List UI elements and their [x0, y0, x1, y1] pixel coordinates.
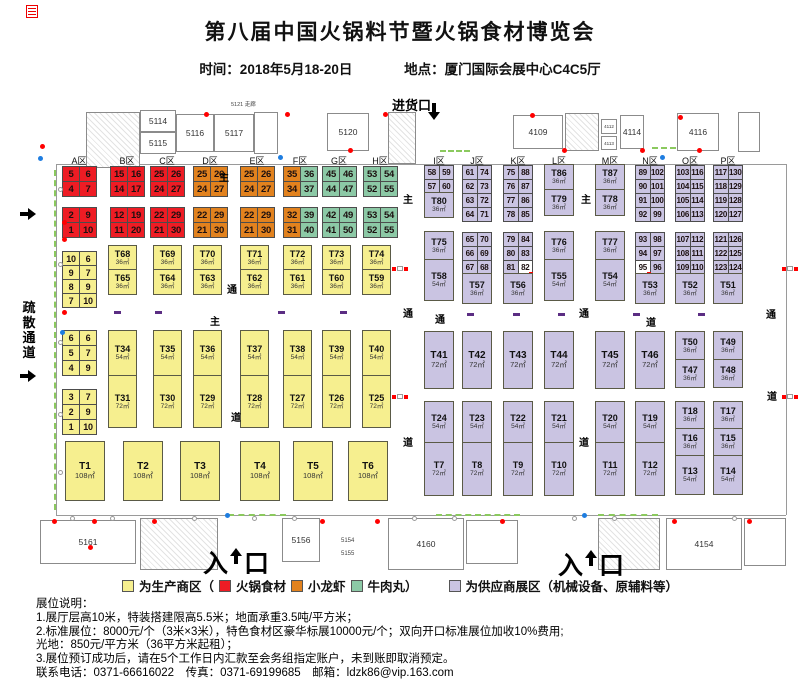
booth-area: 36㎡: [330, 259, 344, 267]
booth-area: 36㎡: [201, 259, 215, 267]
booth-t21: T2154㎡: [544, 401, 574, 443]
booth-t74: T7436㎡: [362, 245, 391, 270]
booth-cell-31: 31: [284, 223, 300, 237]
booth-t72: T7236㎡: [283, 245, 312, 270]
booth-cell-80: 80: [504, 247, 518, 260]
booth-cell-97: 97: [651, 247, 665, 260]
booth-number: T26: [329, 393, 345, 403]
aisle-label: 通: [435, 311, 445, 326]
arrow-right-icon: [20, 370, 36, 382]
fire-point-icon: [530, 113, 535, 118]
booth-area: 36㎡: [291, 259, 305, 267]
booth-area: 36㎡: [721, 416, 735, 424]
evacuation-line: [54, 170, 56, 510]
entrance-label: 入口: [203, 544, 269, 580]
aisle-dash: [278, 311, 285, 314]
booth-number: T73: [329, 249, 345, 259]
booth-cell-22: 22: [151, 208, 167, 222]
booth-t60: T6036㎡: [322, 269, 351, 295]
aisle-label: 主: [219, 169, 229, 184]
booth-t19: T1954㎡: [635, 401, 665, 443]
booth-cell-103: 103: [676, 166, 690, 179]
booth-area: 36㎡: [201, 283, 215, 291]
booth-cell-77: 77: [504, 194, 518, 207]
booth-cell-9: 9: [63, 266, 79, 279]
booth-cell-92: 92: [636, 208, 650, 221]
hydrant-icon: [782, 394, 798, 399]
booth-number: T70: [200, 249, 216, 259]
evacuation-line: [440, 150, 470, 152]
booth-t64: T6436㎡: [153, 269, 182, 295]
booth-number: T9: [513, 460, 524, 470]
booth-t69: T6936㎡: [153, 245, 182, 270]
booth-number: T69: [160, 249, 176, 259]
booth-cell-83: 83: [519, 247, 533, 260]
booth-cell-87: 87: [519, 180, 533, 193]
booth-cell-22: 22: [194, 208, 210, 222]
booth-cell-45: 45: [323, 167, 339, 181]
booth-cell-30: 30: [211, 223, 227, 237]
booth-area: 36㎡: [330, 283, 344, 291]
fire-point-icon: [383, 112, 388, 117]
booth-area: 54㎡: [116, 354, 130, 362]
room-4154: 4154: [666, 518, 742, 570]
booth-cell-115: 115: [691, 180, 705, 193]
booth-number: T55: [551, 271, 567, 281]
arrow-right-icon: [20, 208, 36, 220]
booth-cell-114: 114: [691, 194, 705, 207]
booth-number: T74: [369, 249, 385, 259]
booth-area: 72㎡: [330, 403, 344, 411]
booth-t77: T7736㎡: [595, 231, 625, 260]
booth-cell-19: 19: [128, 208, 144, 222]
booth-t68: T6836㎡: [108, 245, 137, 270]
booth-grid: 8910290101911009299: [635, 165, 665, 222]
room-unlabeled: [388, 112, 416, 164]
booth-number: T17: [720, 406, 736, 416]
booth-number: T37: [247, 344, 263, 354]
door-icon: [192, 516, 197, 521]
booth-cell-63: 63: [463, 194, 477, 207]
booth-cell-10: 10: [80, 223, 96, 237]
booth-area: 108㎡: [75, 472, 95, 480]
fire-point-icon: [52, 519, 57, 524]
booth-number: T59: [369, 273, 385, 283]
booth-t76: T7636㎡: [544, 231, 574, 260]
booth-t31: T3172㎡: [108, 375, 137, 428]
legend-swatch-icon: [449, 580, 461, 592]
booth-number: T7: [434, 460, 445, 470]
booth-t9: T972㎡: [503, 442, 533, 496]
booth-t54: T5454㎡: [595, 259, 625, 301]
booth-t58: T5854㎡: [424, 259, 454, 301]
booth-number: T68: [115, 249, 131, 259]
booth-t43: T4372㎡: [503, 331, 533, 389]
floor-plan-page: 第八届中国火锅料节暨火锅食材博览会 时间：2018年5月18-20日 地点：厦门…: [0, 0, 800, 694]
booth-area: 36㎡: [511, 290, 525, 298]
booth-cell-9: 9: [80, 208, 96, 222]
booth-cell-79: 79: [504, 233, 518, 246]
booth-area: 36㎡: [161, 259, 175, 267]
booth-cell-34: 34: [284, 182, 300, 196]
aisle-dash: [698, 313, 705, 316]
utility-point-icon: [278, 155, 283, 160]
legend-swatch-icon: [351, 580, 363, 592]
booth-grid: 25262427: [240, 166, 275, 197]
fire-point-icon: [92, 519, 97, 524]
booth-area: 36㎡: [370, 259, 384, 267]
booth-t59: T5936㎡: [362, 269, 391, 295]
booth-area: 72㎡: [370, 403, 384, 411]
booth-t20: T2054㎡: [595, 401, 625, 443]
booth-cell-128: 128: [729, 194, 743, 207]
booth-t55: T5554㎡: [544, 259, 574, 301]
booth-cell-36: 36: [301, 167, 317, 181]
booth-t51: T5136㎡: [713, 273, 743, 304]
booth-cell-21: 21: [194, 223, 210, 237]
booth-grid: 798480838182: [503, 232, 533, 275]
booth-cell-10: 10: [80, 420, 96, 434]
booth-number: T40: [369, 344, 385, 354]
booth-grid: 3729110: [62, 389, 97, 435]
booth-cell-11: 11: [111, 223, 127, 237]
booth-t78: T7836㎡: [595, 189, 625, 216]
room-4112: 4112: [601, 119, 617, 134]
booth-number: T35: [160, 344, 176, 354]
booth-grid: 22292130: [193, 207, 228, 238]
evacuation-label: 道: [22, 345, 36, 360]
aisle-label: 道: [646, 314, 656, 329]
booth-number: T31: [115, 393, 131, 403]
booth-grid: 939894979596: [635, 232, 665, 275]
booth-cell-88: 88: [519, 166, 533, 179]
booth-area: 72㎡: [470, 470, 484, 478]
booth-area: 108㎡: [250, 472, 270, 480]
booth-grid: 107112108111109110: [675, 232, 705, 275]
note-line: 联系电话：0371-66616022 传真：0371-69199685 邮箱：l…: [36, 667, 781, 681]
booth-cell-74: 74: [478, 166, 492, 179]
booth-number: T80: [431, 196, 447, 206]
booth-cell-94: 94: [636, 247, 650, 260]
booth-area: 36㎡: [721, 347, 735, 355]
booth-cell-17: 17: [128, 182, 144, 196]
booth-area: 54㎡: [201, 354, 215, 362]
booth-area: 36㎡: [370, 283, 384, 291]
booth-cell-25: 25: [194, 167, 210, 181]
booth-number: T23: [469, 413, 485, 423]
booth-cell-69: 69: [478, 247, 492, 260]
booth-cell-6: 6: [80, 331, 96, 345]
room-unlabeled: [744, 518, 786, 566]
room-5161: 5161: [40, 520, 136, 564]
booth-grid: 45464447: [322, 166, 357, 197]
legend-label: 为供应商展区（机械设备、原辅料等）: [466, 576, 679, 595]
booth-area: 36㎡: [683, 375, 697, 383]
note-line: 光地：850元/平方米（36平方米起租）；: [36, 639, 781, 653]
booth-cell-4: 4: [63, 361, 79, 375]
booth-grid: 7588768777867885: [503, 165, 533, 222]
booth-cell-117: 117: [714, 166, 728, 179]
aisle-dash: [513, 313, 520, 316]
door-icon: [70, 516, 75, 521]
booth-area: 54㎡: [721, 476, 735, 484]
booth-area: 36㎡: [683, 443, 697, 451]
booth-t15: T1536㎡: [713, 428, 743, 456]
booth-cell-100: 100: [651, 194, 665, 207]
hydrant-icon: [392, 394, 408, 399]
booth-cell-7: 7: [80, 182, 96, 196]
booth-cell-107: 107: [676, 233, 690, 246]
booth-number: T48: [720, 365, 736, 375]
wall: [56, 164, 57, 515]
evacuation-line: [598, 514, 658, 516]
utility-point-icon: [60, 330, 65, 335]
legend-swatch-icon: [219, 580, 231, 592]
booth-grid: 103116104115105114106113: [675, 165, 705, 222]
aisle-dash: [633, 313, 640, 316]
room-5116: 5116: [176, 114, 214, 152]
door-icon: [58, 412, 63, 417]
booth-cell-14: 14: [111, 182, 127, 196]
booth-area: 36㎡: [432, 247, 446, 255]
booth-cell-65: 65: [463, 233, 477, 246]
booth-number: T78: [602, 194, 618, 204]
booth-cell-86: 86: [519, 194, 533, 207]
fire-point-icon: [672, 519, 677, 524]
booth-area: 54㎡: [603, 423, 617, 431]
booth-cell-6: 6: [63, 331, 79, 345]
booth-area: 36㎡: [248, 283, 262, 291]
aisle-label: 道: [231, 409, 241, 424]
booth-number: T12: [642, 460, 658, 470]
booth-t39: T3954㎡: [322, 330, 351, 376]
booth-cell-15: 15: [111, 167, 127, 181]
booth-t41: T4172㎡: [424, 331, 454, 389]
booth-t40: T4054㎡: [362, 330, 391, 376]
booth-grid: 15161417: [110, 166, 145, 197]
aisle-label: 道: [767, 388, 777, 403]
booth-grid: 657066696768: [462, 232, 492, 275]
booth-area: 72㎡: [161, 403, 175, 411]
booth-t65: T6536㎡: [108, 269, 137, 295]
booth-number: T54: [602, 271, 618, 281]
booth-t79: T7936㎡: [544, 189, 574, 216]
booth-number: T16: [682, 433, 698, 443]
legend: 为生产商区（火锅食材小龙虾牛肉丸）为供应商展区（机械设备、原辅料等）: [0, 576, 800, 595]
booth-t16: T1636㎡: [675, 428, 705, 456]
booth-number: T50: [682, 337, 698, 347]
utility-point-icon: [225, 513, 230, 518]
booth-area: 54㎡: [330, 354, 344, 362]
booth-area: 54㎡: [683, 476, 697, 484]
booth-cell-52: 52: [364, 182, 380, 196]
booth-number: T57: [469, 280, 485, 290]
booth-area: 36㎡: [552, 178, 566, 186]
booth-cell-25: 25: [151, 167, 167, 181]
door-icon: [252, 516, 257, 521]
booth-area: 36㎡: [721, 375, 735, 383]
booth-number: T87: [602, 168, 618, 178]
aisle-dash: [467, 313, 474, 316]
booth-t1: T1108㎡: [65, 441, 105, 501]
booth-grid: 22292130: [150, 207, 185, 238]
booth-cell-70: 70: [478, 233, 492, 246]
aisle-label: 通: [766, 306, 776, 321]
booth-t63: T6336㎡: [193, 269, 222, 295]
legend-label: 牛肉丸）: [368, 576, 418, 595]
booth-grid: 12191120: [110, 207, 145, 238]
page-title: 第八届中国火锅料节暨火锅食材博览会: [0, 16, 800, 46]
booth-cell-7: 7: [80, 346, 96, 360]
door-icon: [58, 262, 63, 267]
booth-grid: 117130118129119128120127: [713, 165, 743, 222]
utility-point-icon: [582, 513, 587, 518]
booth-cell-49: 49: [340, 208, 356, 222]
booth-grid: 121126122125123124: [713, 232, 743, 275]
booth-number: T15: [720, 433, 736, 443]
booth-area: 72㎡: [432, 470, 446, 478]
booth-cell-120: 120: [714, 208, 728, 221]
booth-number: T20: [602, 413, 618, 423]
door-icon: [452, 516, 457, 521]
booth-number: T77: [602, 237, 618, 247]
booth-cell-46: 46: [340, 167, 356, 181]
booth-t87: T8736㎡: [595, 164, 625, 190]
booth-cell-59: 59: [440, 166, 454, 179]
booth-area: 54㎡: [291, 354, 305, 362]
booth-cell-5: 5: [63, 346, 79, 360]
room-4116: 4116: [677, 113, 719, 151]
booth-area: 54㎡: [603, 281, 617, 289]
booth-number: T86: [551, 168, 567, 178]
note-line: 展位说明：: [36, 598, 781, 612]
room-5115: 5115: [140, 132, 176, 154]
fire-point-icon: [500, 519, 505, 524]
evacuation-line: [228, 514, 286, 516]
booth-area: 108㎡: [133, 472, 153, 480]
goods-entrance-label: 进货口: [392, 95, 431, 114]
room-4160: 4160: [388, 518, 464, 570]
booth-area: 54㎡: [432, 281, 446, 289]
room-5120: 5120: [327, 113, 369, 151]
aisle-label: 主: [210, 313, 220, 328]
booth-t71: T7136㎡: [240, 245, 269, 270]
booth-notes: 展位说明：1.展厅层高10米，特装搭建限高5.5米；地面承重3.5吨/平方米；2…: [36, 598, 781, 681]
booth-grid: 25262427: [150, 166, 185, 197]
booth-cell-37: 37: [301, 182, 317, 196]
booth-number: T63: [200, 273, 216, 283]
aisle-label: 通: [403, 305, 413, 320]
note-line: 3.展位预订成功后，请在5个工作日内汇款至会务组指定账户，未到账即取消预定。: [36, 653, 781, 667]
booth-cell-118: 118: [714, 180, 728, 193]
fire-point-icon: [562, 148, 567, 153]
booth-cell-1: 1: [63, 223, 79, 237]
booth-cell-24: 24: [194, 182, 210, 196]
booth-number: T25: [369, 393, 385, 403]
booth-t62: T6236㎡: [240, 269, 269, 295]
booth-number: T56: [510, 280, 526, 290]
booth-grid: 53545255: [363, 207, 398, 238]
booth-cell-30: 30: [168, 223, 184, 237]
booth-cell-27: 27: [258, 182, 274, 196]
booth-t56: T5636㎡: [503, 273, 533, 304]
booth-t46: T4672㎡: [635, 331, 665, 389]
booth-number: T11: [602, 460, 617, 470]
booth-cell-90: 90: [636, 180, 650, 193]
booth-cell-5: 5: [63, 167, 79, 181]
booth-cell-52: 52: [364, 223, 380, 237]
legend-label: 为生产商区（: [139, 576, 214, 595]
booth-t36: T3654㎡: [193, 330, 222, 376]
note-line: 1.展厅层高10米，特装搭建限高5.5米；地面承重3.5吨/平方米；: [36, 612, 781, 626]
booth-grid: 665749: [62, 330, 97, 376]
booth-t2: T2108㎡: [123, 441, 163, 501]
note-line: 2.标准展位：8000元/个（3米×3米），特色食材区豪华标展10000元/个；…: [36, 626, 781, 640]
booth-number: T71: [247, 249, 263, 259]
booth-area: 54㎡: [161, 354, 175, 362]
booth-t3: T3108㎡: [180, 441, 220, 501]
booth-number: T18: [682, 406, 698, 416]
booth-number: T38: [290, 344, 306, 354]
booth-cell-64: 64: [463, 208, 477, 221]
room-5114: 5114: [140, 110, 176, 132]
booth-t30: T3072㎡: [153, 375, 182, 428]
booth-cell-108: 108: [676, 247, 690, 260]
booth-area: 36㎡: [721, 290, 735, 298]
booth-t50: T5036㎡: [675, 331, 705, 360]
booth-area: 72㎡: [431, 361, 447, 369]
booth-cell-22: 22: [241, 208, 257, 222]
booth-cell-9: 9: [80, 405, 96, 419]
fire-point-icon: [375, 519, 380, 524]
booth-area: 36㎡: [603, 178, 617, 186]
booth-area: 36㎡: [470, 290, 484, 298]
booth-cell-111: 111: [691, 247, 705, 260]
booth-t42: T4272㎡: [462, 331, 492, 389]
booth-area: 36㎡: [683, 416, 697, 424]
utility-point-icon: [38, 156, 43, 161]
booth-grid: 1069789710: [62, 251, 97, 308]
booth-area: 36㎡: [161, 283, 175, 291]
booth-cell-54: 54: [381, 208, 397, 222]
booth-cell-42: 42: [323, 208, 339, 222]
booth-area: 72㎡: [602, 361, 618, 369]
booth-number: T24: [431, 413, 447, 423]
fire-point-icon: [152, 519, 157, 524]
booth-cell-75: 75: [504, 166, 518, 179]
fire-point-icon: [678, 115, 683, 120]
booth-area: 36㎡: [248, 259, 262, 267]
booth-number: T22: [510, 413, 526, 423]
booth-t73: T7336㎡: [322, 245, 351, 270]
booth-cell-10: 10: [63, 252, 79, 265]
booth-number: T62: [247, 273, 263, 283]
door-icon: [58, 470, 63, 475]
booth-area: 36㎡: [721, 443, 735, 451]
booth-grid: 29110: [62, 207, 97, 238]
booth-cell-24: 24: [151, 182, 167, 196]
booth-cell-102: 102: [651, 166, 665, 179]
fire-point-icon: [320, 519, 325, 524]
booth-number: T61: [290, 273, 306, 283]
booth-area: 36㎡: [116, 283, 130, 291]
booth-number: T8: [472, 460, 483, 470]
booth-t48: T4836㎡: [713, 359, 743, 388]
door-icon: [572, 516, 577, 521]
booth-cell-119: 119: [714, 194, 728, 207]
room-4113: 4113: [601, 136, 617, 150]
booth-cell-89: 89: [636, 166, 650, 179]
